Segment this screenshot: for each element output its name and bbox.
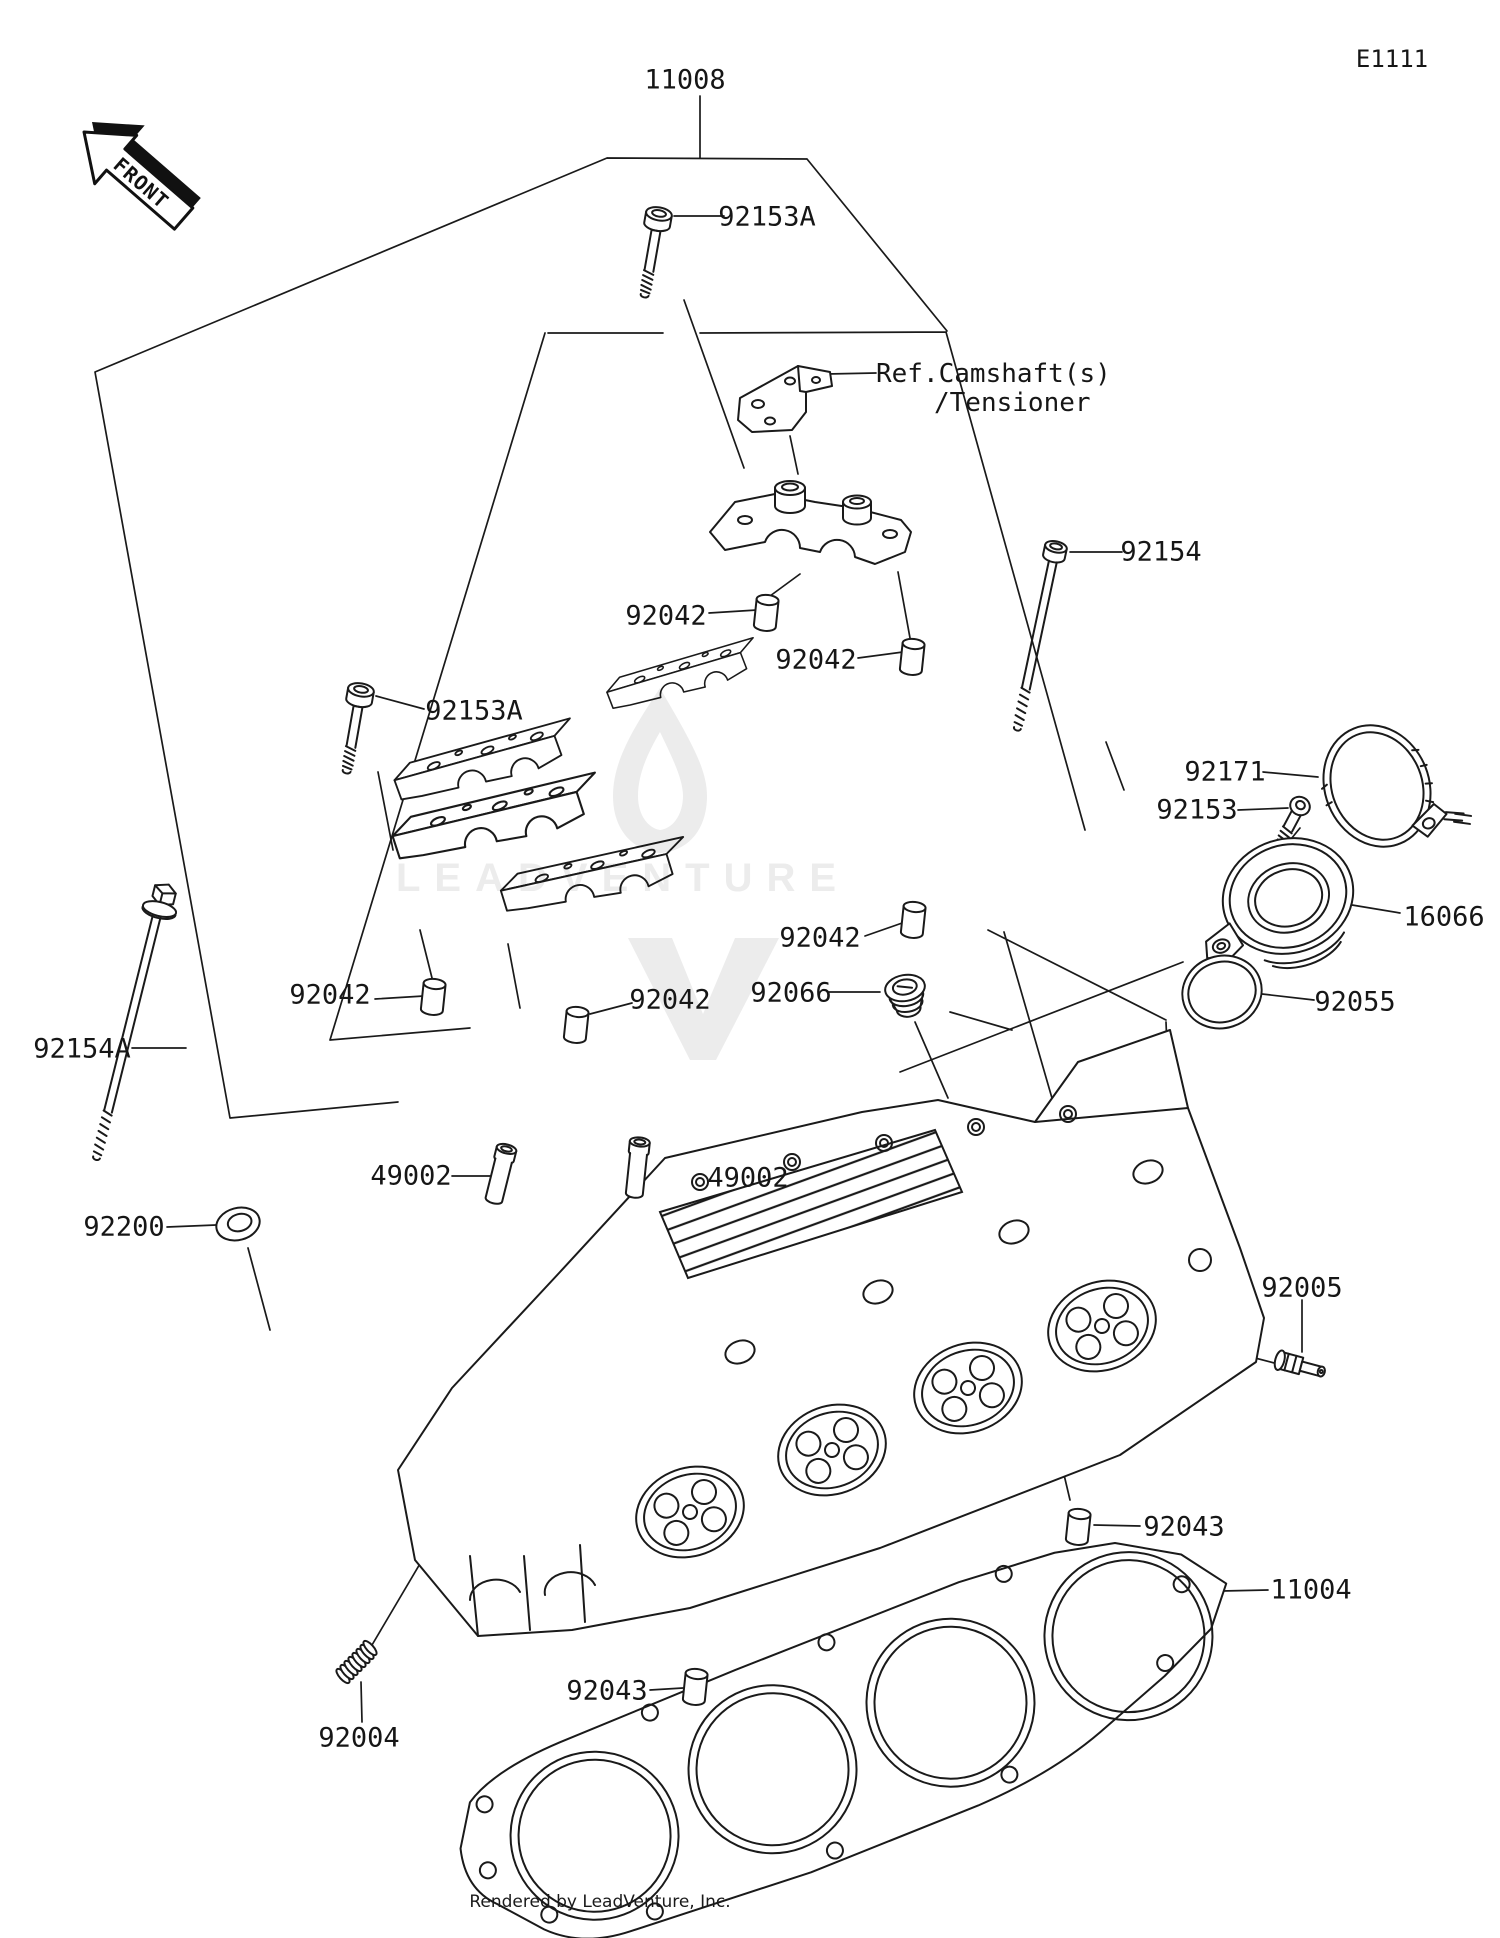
leadventure-logo-watermark [0, 0, 1500, 1938]
part-label-92066: 92066 [750, 978, 831, 1009]
part-label-92005: 92005 [1261, 1273, 1342, 1304]
part-label-92042: 92042 [775, 645, 856, 676]
part-label-92042: 92042 [779, 923, 860, 954]
diagram-code: E1111 [1356, 45, 1428, 73]
part-label-92042: 92042 [289, 980, 370, 1011]
ref-note-line2: /Tensioner [876, 389, 1111, 418]
part-label-11008: 11008 [644, 65, 725, 96]
ref-note-line1: Ref.Camshaft(s) [876, 360, 1111, 389]
part-label-92042: 92042 [625, 601, 706, 632]
part-label-49002: 49002 [370, 1161, 451, 1192]
part-label-92153: 92153 [1156, 795, 1237, 826]
footer-credit: Rendered by LeadVenture, Inc. [469, 1892, 730, 1912]
part-label-92153A: 92153A [425, 696, 523, 727]
part-label-92200: 92200 [83, 1212, 164, 1243]
parts-diagram-page: FRONT LEADVENTURE E1111 Ref.Camshaft(s) … [0, 0, 1500, 1938]
ref-camshaft-note: Ref.Camshaft(s) /Tensioner [876, 360, 1111, 418]
part-label-92043: 92043 [1143, 1512, 1224, 1543]
part-label-92153A: 92153A [718, 202, 816, 233]
part-label-16066: 16066 [1403, 902, 1484, 933]
part-label-49002: 49002 [707, 1163, 788, 1194]
part-label-92043: 92043 [566, 1676, 647, 1707]
part-label-92171: 92171 [1184, 757, 1265, 788]
part-label-92154: 92154 [1120, 537, 1201, 568]
part-label-92154A: 92154A [33, 1034, 131, 1065]
part-label-92055: 92055 [1314, 987, 1395, 1018]
part-label-92042: 92042 [629, 985, 710, 1016]
part-label-92004: 92004 [318, 1723, 399, 1754]
part-label-11004: 11004 [1270, 1575, 1351, 1606]
